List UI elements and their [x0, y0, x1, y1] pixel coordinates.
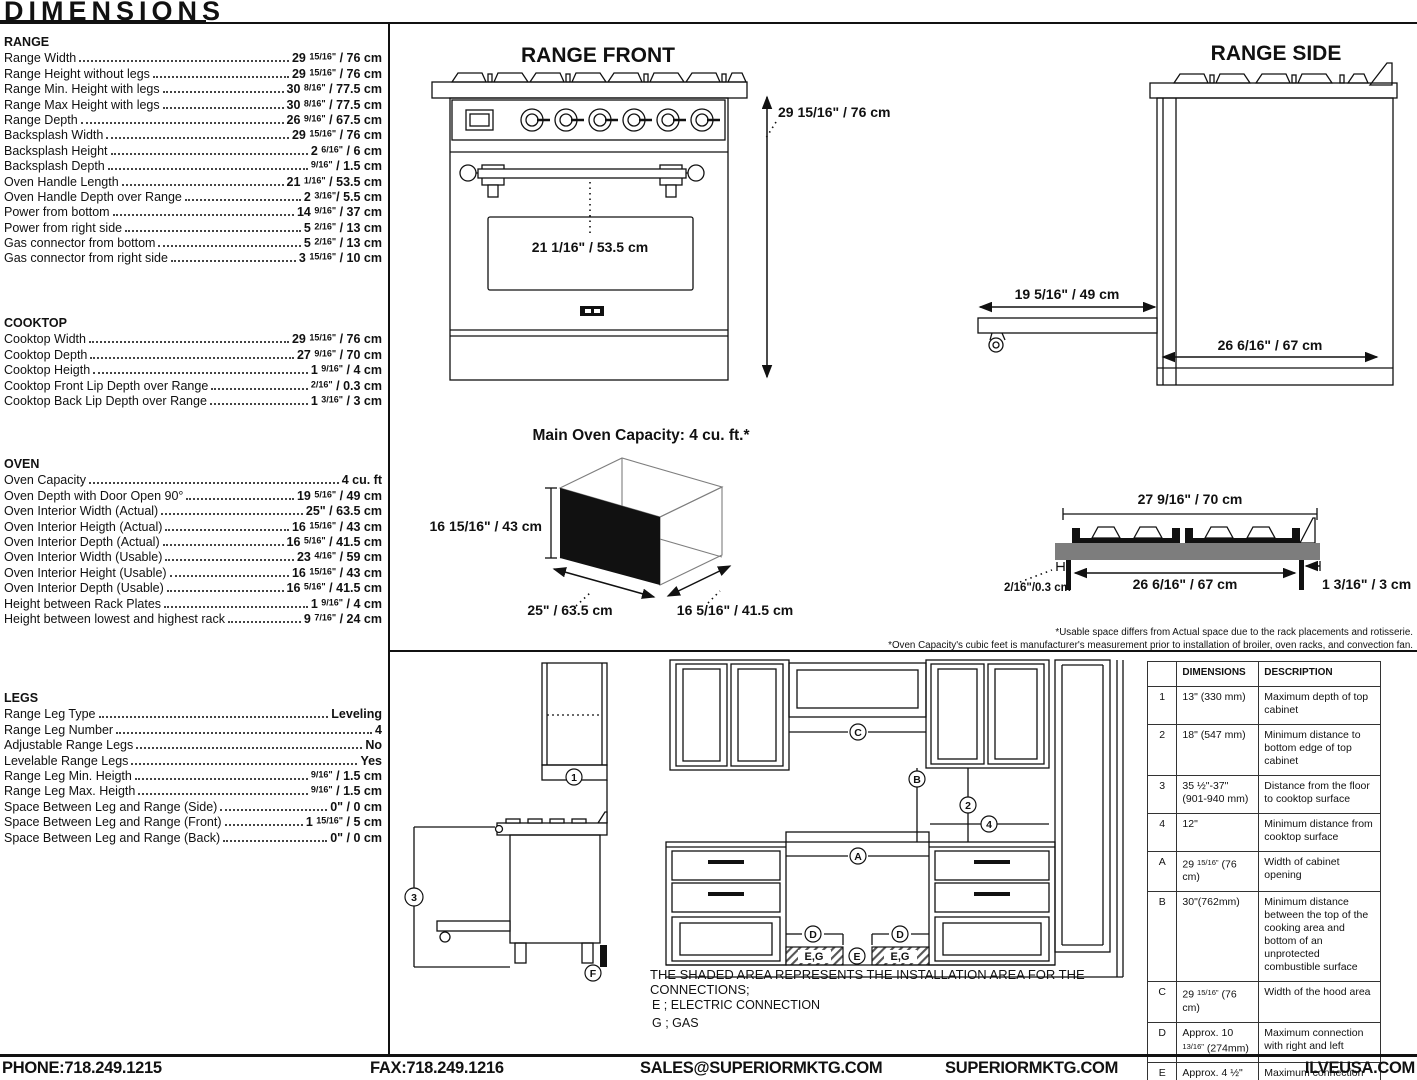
cooktop-slab — [1055, 543, 1320, 560]
dotted-leader — [220, 809, 327, 811]
spec-value: 26 9/16" / 67.5 cm — [287, 113, 382, 127]
dotted-leader — [108, 168, 308, 170]
spec-value: 0" / 0 cm — [330, 800, 382, 814]
installation-side-view: 1 F 3 — [400, 655, 660, 990]
callout-d-right: D — [892, 926, 908, 942]
display-window — [466, 110, 493, 130]
range-leg-back — [582, 943, 593, 963]
top-cabinet — [542, 663, 607, 765]
dotted-leader — [185, 199, 301, 201]
cell-id: C — [1148, 982, 1177, 1022]
spec-section-body: Range Width 29 15/16" / 76 cm Range Heig… — [4, 50, 382, 265]
spec-label: Power from bottom — [4, 205, 110, 219]
svg-text:F: F — [590, 968, 597, 980]
cooktop-right-leg — [1299, 560, 1304, 590]
spec-label: Space Between Leg and Range (Back) — [4, 831, 220, 845]
cell-dimensions: 18" (547 mm) — [1177, 725, 1259, 776]
spec-label: Cooktop Front Lip Depth over Range — [4, 379, 208, 393]
cell-id: 4 — [1148, 814, 1177, 852]
zone-label-left: E,G — [805, 951, 824, 963]
height-dim-label: 29 15/16" / 76 cm — [778, 104, 891, 120]
spec-value: 23 4/16" / 59 cm — [297, 550, 382, 564]
spec-label: Range Leg Max. Heigth — [4, 784, 135, 798]
cell-id: 1 — [1148, 687, 1177, 725]
legend-gas: G ; GAS — [652, 1016, 699, 1030]
box-depth-label: 16 5/16" / 41.5 cm — [677, 602, 793, 618]
spec-section: COOKTOP Cooktop Width 29 15/16" / 76 cm … — [4, 316, 382, 408]
dotted-leader — [210, 403, 308, 405]
spec-row: Cooktop Depth 27 9/16" / 70 cm — [4, 346, 382, 361]
table-row: C 29 15/16" (76 cm) Width of the hood ar… — [1148, 982, 1381, 1022]
dotted-leader — [153, 76, 289, 78]
dotted-leader — [164, 606, 308, 608]
spec-label: Range Width — [4, 51, 76, 65]
footnote-1: *Usable space differs from Actual space … — [773, 626, 1413, 639]
spec-label: Oven Handle Length — [4, 175, 119, 189]
dotted-leader — [89, 341, 289, 343]
spec-value: 19 5/16" / 49 cm — [297, 489, 382, 503]
spec-row: Gas connector from right side 3 15/16" /… — [4, 250, 382, 265]
callout-3: 3 — [405, 888, 423, 906]
spec-section-title: OVEN — [4, 457, 382, 472]
spec-section-title: COOKTOP — [4, 316, 382, 331]
dotted-leader — [90, 357, 294, 359]
spec-label: Range Depth — [4, 113, 78, 127]
spec-value: 16 15/16" / 43 cm — [292, 520, 382, 534]
table-row: 3 35 ½"-37" (901-940 mm) Distance from t… — [1148, 776, 1381, 814]
spec-row: Height between Rack Plates 1 9/16" / 4 c… — [4, 595, 382, 610]
cell-dimensions: 29 15/16" (76 cm) — [1177, 982, 1259, 1022]
spec-label: Range Min. Height with legs — [4, 82, 160, 96]
spec-row: Oven Handle Depth over Range 2 3/16"/ 5.… — [4, 189, 382, 204]
spec-label: Oven Handle Depth over Range — [4, 190, 182, 204]
spec-value: 2 3/16"/ 5.5 cm — [304, 190, 382, 204]
dotted-leader — [99, 716, 329, 718]
dotted-leader — [106, 137, 289, 139]
dotted-leader — [167, 590, 284, 592]
callout-c: C — [850, 724, 866, 740]
svg-text:4: 4 — [986, 819, 992, 831]
table-row: 4 12" Minimum distance from cooktop surf… — [1148, 814, 1381, 852]
spec-label: Oven Interior Height (Usable) — [4, 566, 167, 580]
table-body: 1 13" (330 mm) Maximum depth of top cabi… — [1148, 687, 1381, 1080]
spec-label: Backsplash Width — [4, 128, 103, 142]
installation-front-view: C B 2 4 A — [650, 655, 1140, 985]
cooktop-inner-dim-label: 26 6/16" / 67 cm — [1133, 576, 1238, 592]
spec-label: Oven Interior Width (Actual) — [4, 504, 158, 518]
burner-profiles — [1072, 527, 1300, 543]
spec-label: Range Leg Min. Heigth — [4, 769, 132, 783]
spec-row: Height between lowest and highest rack 9… — [4, 611, 382, 626]
spec-label: Oven Interior Heigth (Actual) — [4, 520, 162, 534]
spec-label: Cooktop Width — [4, 332, 86, 346]
spec-value: 16 5/16" / 41.5 cm — [287, 581, 382, 595]
spec-row: Range Leg Max. Heigth 9/16" / 1.5 cm — [4, 783, 382, 798]
spec-value: 9 7/16" / 24 cm — [304, 612, 382, 626]
spec-value: 1 9/16" / 4 cm — [311, 363, 382, 377]
front-lip-label: 2/16"/0.3 cm — [1004, 582, 1071, 594]
spec-label: Backsplash Depth — [4, 159, 105, 173]
spec-value: 29 15/16" / 76 cm — [292, 51, 382, 65]
open-door-small — [437, 921, 510, 931]
table-header-row: DIMENSIONS DESCRIPTION — [1148, 662, 1381, 687]
spec-value: 4 cu. ft — [342, 473, 382, 487]
spec-value: 29 15/16" / 76 cm — [292, 128, 382, 142]
spec-row: Power from right side 5 2/16" / 13 cm — [4, 219, 382, 234]
spec-row: Range Depth 26 9/16" / 67.5 cm — [4, 112, 382, 127]
table-row: 2 18" (547 mm) Minimum distance to botto… — [1148, 725, 1381, 776]
spec-label: Cooktop Back Lip Depth over Range — [4, 394, 207, 408]
spec-label: Space Between Leg and Range (Side) — [4, 800, 217, 814]
header-description: DESCRIPTION — [1259, 662, 1381, 687]
zone-label-right: E,G — [891, 951, 910, 963]
right-wall-cabinet — [926, 660, 1049, 768]
header-id — [1148, 662, 1177, 687]
spec-section-title: LEGS — [4, 691, 382, 706]
spec-section: LEGS Range Leg Type Leveling Range Leg N… — [4, 691, 382, 845]
svg-text:2: 2 — [965, 800, 971, 812]
legend-electric: E ; ELECTRIC CONNECTION — [652, 998, 820, 1012]
footer-site-ilve: ILVEUSA.COM — [1305, 1059, 1415, 1078]
spec-label: Oven Interior Depth (Usable) — [4, 581, 164, 595]
spec-label: Gas connector from right side — [4, 251, 168, 265]
spec-row: Backsplash Depth 9/16" / 1.5 cm — [4, 158, 382, 173]
dotted-leader — [170, 575, 289, 577]
spec-value: 29 15/16" / 76 cm — [292, 67, 382, 81]
cooktop-top-dim-line — [1063, 508, 1317, 520]
spec-section-body: Oven Capacity 4 cu. ft Oven Depth with D… — [4, 472, 382, 626]
spec-value: 30 8/16" / 77.5 cm — [287, 98, 382, 112]
svg-text:E: E — [853, 951, 860, 963]
footer-email: SALES@SUPERIORMKTG.COM — [640, 1059, 882, 1078]
oven-box-wireframe — [560, 458, 722, 585]
spec-value: 2/16" / 0.3 cm — [311, 379, 382, 393]
dotted-leader — [228, 621, 301, 623]
backsplash-profile — [1370, 63, 1392, 85]
spec-value: 21 1/16" / 53.5 cm — [287, 175, 382, 189]
svg-text:D: D — [896, 929, 904, 941]
dotted-leader — [165, 529, 289, 531]
svg-text:D: D — [809, 929, 817, 941]
oven-handle — [460, 165, 704, 197]
footer-site: SUPERIORMKTG.COM — [945, 1059, 1118, 1078]
spec-row: Range Leg Number 4 — [4, 721, 382, 736]
spec-label: Space Between Leg and Range (Front) — [4, 815, 222, 829]
spec-value: 9/16" / 1.5 cm — [311, 159, 382, 173]
spec-row: Oven Depth with Door Open 90° 19 5/16" /… — [4, 487, 382, 502]
spec-label: Power from right side — [4, 221, 122, 235]
left-wall-cabinet — [670, 660, 789, 770]
callout-d-left: D — [805, 926, 821, 942]
side-burner-grates — [1174, 74, 1368, 83]
spec-value: 25" / 63.5 cm — [306, 504, 382, 518]
back-lip-bracket — [1306, 561, 1320, 571]
spec-row: Range Width 29 15/16" / 76 cm — [4, 50, 382, 65]
cell-id: 2 — [1148, 725, 1177, 776]
control-knobs — [521, 109, 720, 131]
spec-row: Range Max Height with legs 30 8/16" / 77… — [4, 96, 382, 111]
hood-cabinet — [789, 663, 926, 717]
front-lip-leader — [1020, 570, 1052, 582]
cell-description: Minimum distance between the top of the … — [1259, 892, 1381, 982]
callout-1: 1 — [566, 769, 582, 785]
header-dimensions: DIMENSIONS — [1177, 662, 1259, 687]
left-base-cabinet — [666, 842, 786, 965]
footer-rule — [0, 1054, 1417, 1057]
dotted-leader — [111, 153, 308, 155]
spec-row: Cooktop Heigth 1 9/16" / 4 cm — [4, 362, 382, 377]
dotted-leader — [223, 840, 327, 842]
spec-value: 4 — [375, 723, 382, 737]
spec-row: Cooktop Back Lip Depth over Range 1 3/16… — [4, 393, 382, 408]
spec-label: Adjustable Range Legs — [4, 738, 133, 752]
cell-description: Maximum depth of top cabinet — [1259, 687, 1381, 725]
dotted-leader — [136, 747, 362, 749]
connection-strip — [600, 945, 607, 967]
footnote-2: *Oven Capacity's cubic feet is manufactu… — [773, 639, 1413, 652]
dotted-leader — [125, 230, 301, 232]
footnotes: *Usable space differs from Actual space … — [773, 626, 1413, 652]
dotted-leader — [171, 260, 296, 262]
right-base-cabinet — [929, 842, 1055, 965]
range-side-diagram: 19 5/16" / 49 cm 26 6/16" / 67 cm — [950, 60, 1417, 390]
table-row: 1 13" (330 mm) Maximum depth of top cabi… — [1148, 687, 1381, 725]
spec-row: Range Height without legs 29 15/16" / 76… — [4, 65, 382, 80]
dotted-leader — [81, 122, 284, 124]
dotted-leader — [165, 559, 294, 561]
callout-e: E — [849, 948, 865, 964]
spec-value: 1 15/16" / 5 cm — [306, 815, 382, 829]
spec-value: Leveling — [331, 707, 382, 721]
spec-value: 29 15/16" / 76 cm — [292, 332, 382, 346]
spec-section-title: RANGE — [4, 35, 382, 50]
svg-text:A: A — [854, 851, 862, 863]
spec-value: 0" / 0 cm — [330, 831, 382, 845]
svg-text:C: C — [854, 727, 862, 739]
box-height-label: 16 15/16" / 43 cm — [430, 518, 543, 534]
dotted-leader — [225, 824, 303, 826]
spec-value: 1 3/16" / 3 cm — [311, 394, 382, 408]
spec-row: Range Leg Min. Heigth 9/16" / 1.5 cm — [4, 768, 382, 783]
footer-fax: FAX:718.249.1216 — [370, 1059, 504, 1078]
cell-dimensions: 35 ½"-37" (901-940 mm) — [1177, 776, 1259, 814]
spec-label: Backsplash Height — [4, 144, 108, 158]
cell-description: Width of the hood area — [1259, 982, 1381, 1022]
brand-logo — [580, 306, 604, 316]
spec-value: 30 8/16" / 77.5 cm — [287, 82, 382, 96]
dotted-leader — [158, 245, 300, 247]
handle-dim-label: 21 1/16" / 53.5 cm — [532, 239, 648, 255]
cell-description: Distance from the floor to cooktop surfa… — [1259, 776, 1381, 814]
spec-row: Oven Capacity 4 cu. ft — [4, 472, 382, 487]
spec-value: 27 9/16" / 70 cm — [297, 348, 382, 362]
connections-table: DIMENSIONS DESCRIPTION 1 13" (330 mm) Ma… — [1147, 661, 1381, 1080]
spec-value: 9/16" / 1.5 cm — [311, 784, 382, 798]
spec-label: Oven Interior Width (Usable) — [4, 550, 162, 564]
spec-label: Height between Rack Plates — [4, 597, 161, 611]
cooktop-edge — [432, 82, 747, 98]
spec-row: Space Between Leg and Range (Front) 1 15… — [4, 814, 382, 829]
cooktop-profile-diagram: 27 9/16" / 70 cm 2/16"/0.3 cm 26 6/16" /… — [1000, 478, 1417, 603]
range-front-diagram: 21 1/16" / 53.5 cm 29 15/16" / 76 cm — [420, 66, 920, 396]
footer-phone: PHONE:718.249.1215 — [2, 1059, 162, 1078]
spec-row: Range Min. Height with legs 30 8/16" / 7… — [4, 81, 382, 96]
dotted-leader — [89, 482, 339, 484]
dotted-leader — [163, 91, 284, 93]
spec-label: Cooktop Depth — [4, 348, 87, 362]
spec-row: Cooktop Front Lip Depth over Range 2/16"… — [4, 377, 382, 392]
title-underline — [0, 20, 206, 24]
spec-row: Backsplash Height 2 6/16" / 6 cm — [4, 142, 382, 157]
spec-value: 9/16" / 1.5 cm — [311, 769, 382, 783]
cell-id: 3 — [1148, 776, 1177, 814]
dotted-leader — [113, 214, 294, 216]
back-lip-label: 1 3/16" / 3 cm — [1322, 576, 1411, 592]
spec-section-body: Range Leg Type Leveling Range Leg Number… — [4, 706, 382, 845]
dotted-leader — [186, 498, 294, 500]
box-width-label: 25" / 63.5 cm — [527, 602, 612, 618]
spec-value: No — [365, 738, 382, 752]
dotted-leader — [79, 60, 289, 62]
spec-row: Oven Interior Depth (Usable) 16 5/16" / … — [4, 580, 382, 595]
footer: PHONE:718.249.1215 FAX:718.249.1216 SALE… — [0, 1059, 1417, 1080]
callout-4: 4 — [981, 816, 997, 832]
spec-label: Range Height without legs — [4, 67, 150, 81]
dotted-leader — [163, 544, 284, 546]
dotted-leader — [211, 388, 308, 390]
spec-label: Oven Interior Depth (Actual) — [4, 535, 160, 549]
vertical-divider — [388, 22, 390, 1054]
range-front-title: RANGE FRONT — [448, 44, 748, 68]
spec-label: Oven Depth with Door Open 90° — [4, 489, 183, 503]
spec-section: OVEN Oven Capacity 4 cu. ft Oven Depth w… — [4, 457, 382, 626]
cell-dimensions: 12" — [1177, 814, 1259, 852]
box-height-bracket — [545, 488, 557, 558]
burner-grates — [452, 73, 746, 82]
cell-dimensions: 13" (330 mm) — [1177, 687, 1259, 725]
oven-box-dark-face — [560, 488, 660, 585]
callout-f: F — [585, 965, 601, 981]
spec-label: Height between lowest and highest rack — [4, 612, 225, 626]
spec-section-body: Cooktop Width 29 15/16" / 76 cm Cooktop … — [4, 331, 382, 408]
spec-value: 5 2/16" / 13 cm — [304, 221, 382, 235]
callout-a: A — [850, 848, 866, 864]
spec-row: Backsplash Width 29 15/16" / 76 cm — [4, 127, 382, 142]
cooktop-backsplash-edge — [1300, 518, 1315, 543]
cell-id: A — [1148, 852, 1177, 892]
oven-capacity-title: Main Oven Capacity: 4 cu. ft.* — [466, 427, 816, 445]
depth-dim-label: 26 6/16" / 67 cm — [1218, 337, 1323, 353]
box-depth-arrow — [668, 566, 730, 596]
spec-value: 3 15/16" / 10 cm — [299, 251, 382, 265]
dotted-leader — [135, 778, 308, 780]
spec-row: Space Between Leg and Range (Back) 0" / … — [4, 829, 382, 844]
spec-value: 16 15/16" / 43 cm — [292, 566, 382, 580]
spec-label: Levelable Range Legs — [4, 754, 128, 768]
spec-label: Range Leg Number — [4, 723, 113, 737]
cell-dimensions: 30"(762mm) — [1177, 892, 1259, 982]
spec-value: 5 2/16" / 13 cm — [304, 236, 382, 250]
spec-value: 2 6/16" / 6 cm — [311, 144, 382, 158]
range-leg-front — [515, 943, 526, 963]
spec-row: Oven Interior Heigth (Actual) 16 15/16" … — [4, 518, 382, 533]
table-row: B 30"(762mm) Minimum distance between th… — [1148, 892, 1381, 982]
door-dim-label: 19 5/16" / 49 cm — [1015, 286, 1120, 302]
front-lip-bracket — [1057, 562, 1064, 571]
dotted-leader — [122, 184, 284, 186]
floor-height-dim — [414, 827, 510, 967]
spec-label: Cooktop Heigth — [4, 363, 90, 377]
cell-description: Width of cabinet opening — [1259, 852, 1381, 892]
spec-value: 14 9/16" / 37 cm — [297, 205, 382, 219]
svg-text:B: B — [913, 774, 921, 786]
spec-value: 16 5/16" / 41.5 cm — [287, 535, 382, 549]
spec-row: Space Between Leg and Range (Side) 0" / … — [4, 798, 382, 813]
spec-section: RANGE Range Width 29 15/16" / 76 cm Rang… — [4, 35, 382, 265]
spec-label: Range Leg Type — [4, 707, 96, 721]
tall-cabinet — [1055, 660, 1110, 952]
spec-row: Gas connector from bottom 5 2/16" / 13 c… — [4, 235, 382, 250]
spec-row: Oven Interior Width (Usable) 23 4/16" / … — [4, 549, 382, 564]
dotted-leader — [138, 793, 308, 795]
callout-b: B — [909, 771, 925, 787]
spec-row: Oven Interior Width (Actual) 25" / 63.5 … — [4, 503, 382, 518]
dotted-leader — [161, 513, 303, 515]
oven-capacity-diagram: 16 15/16" / 43 cm 25" / 63.5 cm 16 5/16"… — [430, 445, 850, 620]
spec-row: Cooktop Width 29 15/16" / 76 cm — [4, 331, 382, 346]
svg-text:3: 3 — [411, 892, 417, 904]
cooktop-edge-side — [1150, 83, 1397, 98]
cooktop-top-dim-label: 27 9/16" / 70 cm — [1138, 491, 1243, 507]
range-gap-band — [786, 832, 929, 842]
callout-2: 2 — [960, 797, 976, 813]
dotted-leader — [131, 763, 357, 765]
spec-label: Oven Capacity — [4, 473, 86, 487]
cell-description: Minimum distance from cooktop surface — [1259, 814, 1381, 852]
cell-description: Minimum distance to bottom edge of top c… — [1259, 725, 1381, 776]
dotted-leader — [116, 732, 372, 734]
installation-note: THE SHADED AREA REPRESENTS THE INSTALLAT… — [650, 967, 1150, 997]
spec-row: Range Leg Type Leveling — [4, 706, 382, 721]
cell-dimensions: 29 15/16" (76 cm) — [1177, 852, 1259, 892]
cell-id: B — [1148, 892, 1177, 982]
spec-row: Adjustable Range Legs No — [4, 737, 382, 752]
dotted-leader — [93, 372, 308, 374]
dotted-leader — [163, 107, 284, 109]
spec-row: Oven Interior Height (Usable) 16 15/16" … — [4, 564, 382, 579]
spec-sheet: DIMENSIONS RANGE Range Width 29 15/16" /… — [0, 0, 1417, 1080]
spec-value: 1 9/16" / 4 cm — [311, 597, 382, 611]
range-side-small — [437, 812, 607, 967]
svg-text:1: 1 — [571, 772, 577, 784]
door-caster — [440, 932, 450, 942]
table-row: A 29 15/16" (76 cm) Width of cabinet ope… — [1148, 852, 1381, 892]
spec-row: Power from bottom 14 9/16" / 37 cm — [4, 204, 382, 219]
spec-label: Range Max Height with legs — [4, 98, 160, 112]
handle-ball-side — [496, 826, 503, 833]
open-door — [978, 318, 1157, 352]
spec-row: Oven Interior Depth (Actual) 16 5/16" / … — [4, 534, 382, 549]
spec-label: Gas connector from bottom — [4, 236, 155, 250]
spec-row: Levelable Range Legs Yes — [4, 752, 382, 767]
spec-value: Yes — [360, 754, 382, 768]
spec-row: Oven Handle Length 21 1/16" / 53.5 cm — [4, 173, 382, 188]
